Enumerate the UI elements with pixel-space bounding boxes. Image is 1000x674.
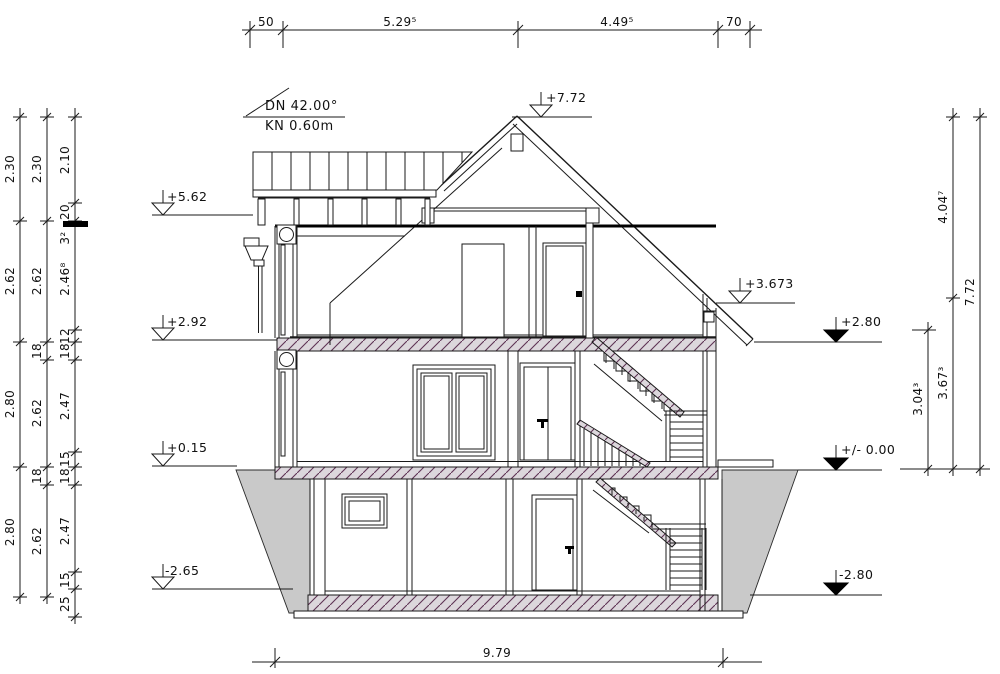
slab-upper-floor (277, 338, 716, 351)
basement-railing-balusters (584, 429, 640, 466)
dim-l1-0: 2.30 (3, 155, 17, 183)
joist-stud (362, 199, 367, 225)
level-text-minus-2-80: -2.80 (839, 567, 873, 582)
dim-top-1: 5.29⁵ (383, 15, 417, 29)
basement-window-glass (349, 501, 380, 521)
dim-l1-2: 2.80 (3, 390, 17, 418)
dim-bottom: 9.79 (483, 646, 511, 660)
downspout-funnel (245, 246, 268, 260)
ridge-note-text: KN 0.60m (265, 119, 334, 134)
fascia-band (253, 190, 436, 197)
ground-door-handle-icon (541, 419, 544, 428)
dim-l2-5: 2.62 (30, 527, 44, 555)
dim-l2-0: 2.30 (30, 155, 44, 183)
earth-right (722, 470, 798, 613)
level-marker-eave: +3.673 (716, 276, 795, 303)
slab-basement-floor (308, 595, 718, 611)
earth-left (236, 470, 310, 613)
attic-door-post (586, 223, 593, 338)
dim-l2-4: 18 (30, 468, 44, 484)
dim-l3-9: 2.47 (58, 517, 72, 545)
level-text-2-92: +2.92 (167, 314, 207, 329)
dim-l3-6: 2.47 (58, 392, 72, 420)
dim-chain-bottom: 9.79 (252, 646, 762, 668)
interior-wall-attic (529, 226, 536, 338)
gutter-pipe-upper-icon (280, 228, 294, 242)
roof-planks (253, 152, 472, 190)
basement-door-leaf (536, 499, 573, 590)
level-text-ridge: +7.72 (546, 90, 586, 105)
upper-tread-stack (664, 411, 707, 462)
openings (342, 243, 586, 590)
dim-l3-4: 12 (58, 328, 72, 344)
dim-r-mid-0: 4.04⁷ (936, 190, 950, 224)
dim-r-inner: 3.04³ (911, 382, 925, 416)
level-marker-zero: +/- 0.00 (798, 442, 895, 470)
dim-l2-1: 2.62 (30, 267, 44, 295)
basement-wall-right (700, 479, 722, 611)
basement-wall-left (310, 479, 325, 595)
attic-left-opening (462, 244, 504, 337)
left-wall-window-ground (281, 372, 285, 456)
level-marker-ridge: +7.72 (512, 90, 592, 117)
dim-chains-left: 2.30 2.62 2.80 2.80 2.30 2.62 18 2.62 18… (3, 108, 88, 624)
level-marker-plus-2-80: +2.80 (754, 314, 882, 342)
section-svg: +5.62 +2.92 +0.15 -2.65 +7.72 +3.673 +2.… (0, 0, 1000, 674)
building-section-drawing: +5.62 +2.92 +0.15 -2.65 +7.72 +3.673 +2.… (0, 0, 1000, 674)
attic-door-handle-icon (576, 291, 582, 297)
roof-note: DN 42.00° KN 0.60m (243, 88, 345, 134)
footing-layer (294, 611, 743, 618)
dim-top-2: 4.49⁵ (600, 15, 634, 29)
roof (330, 116, 753, 346)
downspout-bracket (244, 238, 259, 246)
dim-l3-11: 25 (58, 596, 72, 612)
roof-eave-cap (746, 339, 753, 346)
dim-l1-1: 2.62 (3, 267, 17, 295)
earth-backfill (236, 470, 798, 613)
level-text-5-62: +5.62 (167, 189, 207, 204)
level-text-eave: +3.673 (745, 276, 794, 291)
roof-pitch-text: DN 42.00° (265, 99, 338, 114)
ridge-beam (511, 134, 523, 151)
basement-door-handle-icon (568, 546, 571, 554)
upper-flight-steps (592, 351, 664, 411)
french-window-left-glass (424, 376, 449, 449)
right-wall-ground (703, 351, 716, 467)
dim-l2-3: 2.62 (30, 399, 44, 427)
level-marker-minus-2-80: -2.80 (750, 567, 882, 595)
dim-l3-7: 15 (58, 451, 72, 467)
dim-l3-3: 2.46⁸ (58, 262, 72, 296)
dim-l3-5: 18 (58, 343, 72, 359)
basement-stair-railing-above (577, 420, 650, 467)
dim-r-outer: 7.72 (963, 278, 977, 306)
dim-chain-top: 50 5.29⁵ 4.49⁵ 70 (242, 15, 762, 48)
dim-chains-right: 3.04³ 4.04⁷ 3.67³ 7.72 (900, 108, 990, 476)
left-wall-window-attic (281, 245, 285, 335)
dim-top-3: 70 (726, 15, 742, 29)
level-text-0-15: +0.15 (167, 440, 207, 455)
dim-l2-2: 18 (30, 343, 44, 359)
joist-stud (396, 199, 401, 225)
stairs (577, 337, 707, 590)
dim-thick-bar (63, 221, 88, 227)
level-text-zero: +/- 0.00 (841, 442, 895, 457)
exterior-landing (718, 460, 773, 467)
gutter-pipe-lower-icon (280, 353, 294, 367)
french-window-right-glass (459, 376, 484, 449)
level-text-minus-2-65: -2.65 (165, 563, 199, 578)
slab-ground-floor (275, 467, 718, 479)
downspout-outlet (254, 260, 264, 266)
level-marker-5-62: +5.62 (152, 189, 253, 215)
dim-l1-3: 2.80 (3, 518, 17, 546)
joist-stud (294, 199, 299, 225)
dim-l3-0: 2.10 (58, 146, 72, 174)
joist-stud (425, 199, 430, 225)
dim-l3-10: 15 (58, 572, 72, 588)
dim-l3-1: 20 (58, 204, 72, 220)
dim-l3-8: 18 (58, 468, 72, 484)
level-text-plus-2-80: +2.80 (841, 314, 881, 329)
dim-r-mid-1: 3.67³ (936, 366, 950, 400)
level-marker-0-15: +0.15 (152, 440, 237, 466)
dim-top-0: 50 (258, 15, 274, 29)
downspout-pipe (259, 266, 263, 333)
wall-plate (704, 312, 714, 322)
joist-end-post (258, 199, 265, 225)
dim-l3-2: 3² (58, 231, 72, 244)
purlin-right (586, 208, 599, 223)
joist-stud (328, 199, 333, 225)
